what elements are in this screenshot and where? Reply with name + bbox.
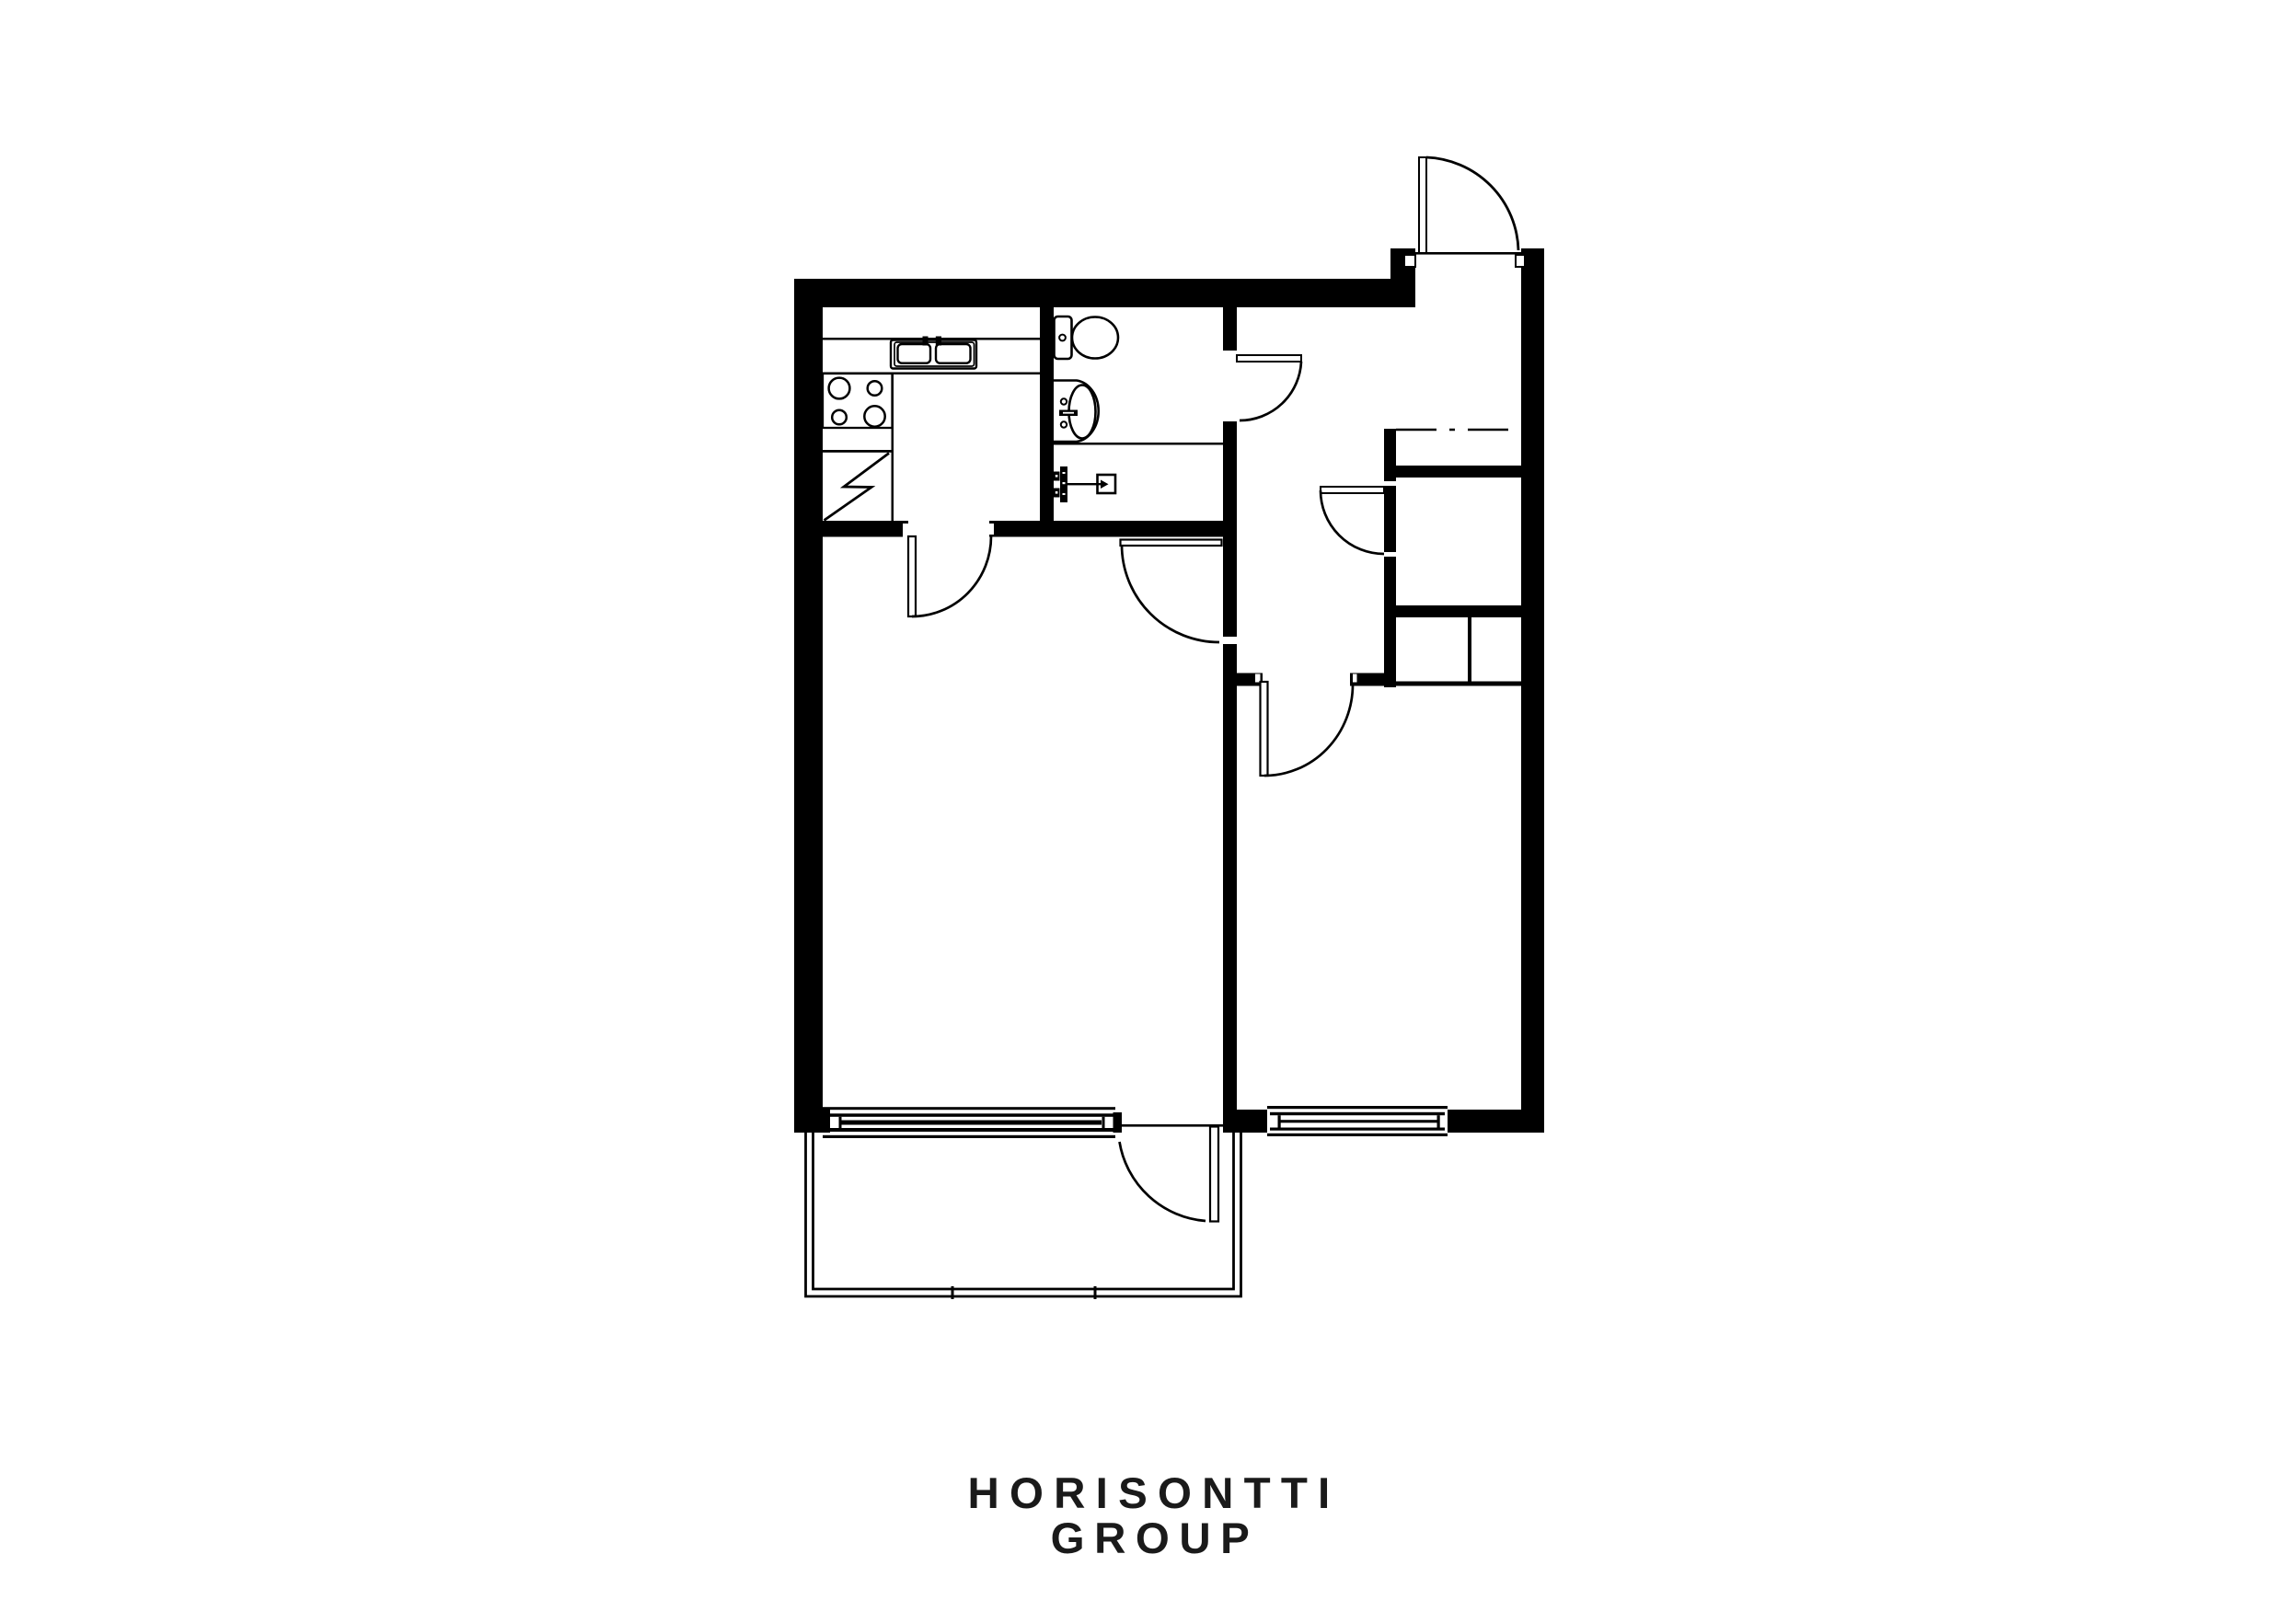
svg-text:HORISONTTI: HORISONTTI bbox=[968, 1469, 1341, 1518]
svg-text:GROUP: GROUP bbox=[1051, 1514, 1260, 1563]
